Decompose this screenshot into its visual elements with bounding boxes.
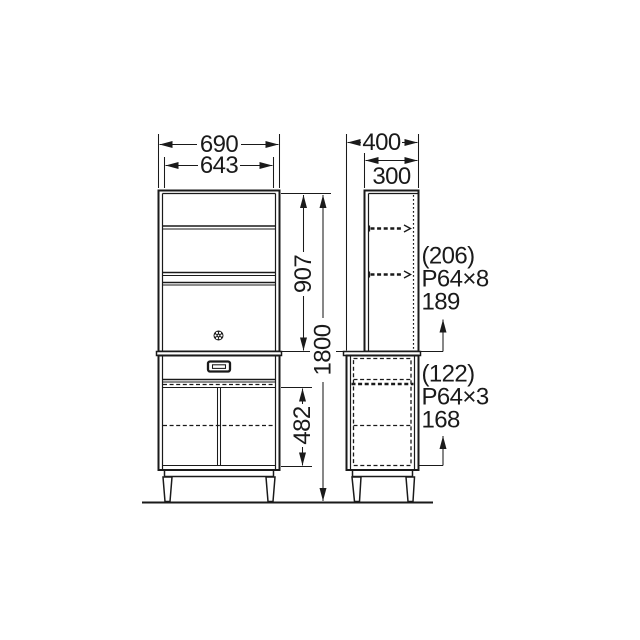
shelf-note-upper: (206) P64×8 189 <box>422 243 489 352</box>
front-upper-cabinet <box>159 191 280 352</box>
dim-depth-upper-label: 300 <box>372 163 410 190</box>
front-shelf-1 <box>163 226 276 229</box>
front-drawer <box>163 362 276 383</box>
front-shelf-2 <box>163 273 276 276</box>
side-shelf-1-dashed <box>370 225 411 232</box>
cabinet-dimension-drawing: 690 643 907 1800 <box>0 0 640 640</box>
shelf-note-lower: (122) P64×3 168 <box>419 361 489 466</box>
side-interior-dashed <box>354 359 412 466</box>
dim-lower-inner-height: 482 <box>281 388 316 467</box>
drawing-canvas: 690 643 907 1800 <box>0 0 640 640</box>
leader-arrow-lower <box>419 436 444 466</box>
note-lower-base: 168 <box>422 407 460 434</box>
front-lower-cabinet <box>159 356 280 502</box>
dim-upper-height-label: 907 <box>290 255 317 293</box>
dim-lower-inner-height-label: 482 <box>289 406 316 444</box>
dimensions: 690 643 907 1800 <box>159 129 444 501</box>
front-view <box>157 191 282 502</box>
dim-depth-total-label: 400 <box>362 129 400 156</box>
front-right-leg <box>266 477 275 502</box>
front-door-top-rail <box>163 283 276 286</box>
note-upper-base: 189 <box>422 289 460 316</box>
dim-total-height: 1800 <box>310 195 337 501</box>
side-upper-cabinet <box>365 191 419 352</box>
front-left-leg <box>163 477 172 502</box>
dim-width-inner-label: 643 <box>200 152 238 179</box>
drawer-handle-icon <box>208 362 230 372</box>
dim-width-inner: 643 <box>165 152 274 188</box>
side-lower-cabinet <box>347 356 419 502</box>
dim-total-height-label: 1800 <box>310 324 337 375</box>
side-back-leg <box>406 477 415 502</box>
side-view <box>344 191 421 502</box>
door-knob-icon <box>214 331 224 341</box>
front-doors <box>163 388 276 466</box>
side-shelf-2-dashed <box>370 271 411 278</box>
side-front-leg <box>352 477 361 502</box>
dim-depth-upper: 300 <box>365 153 418 190</box>
